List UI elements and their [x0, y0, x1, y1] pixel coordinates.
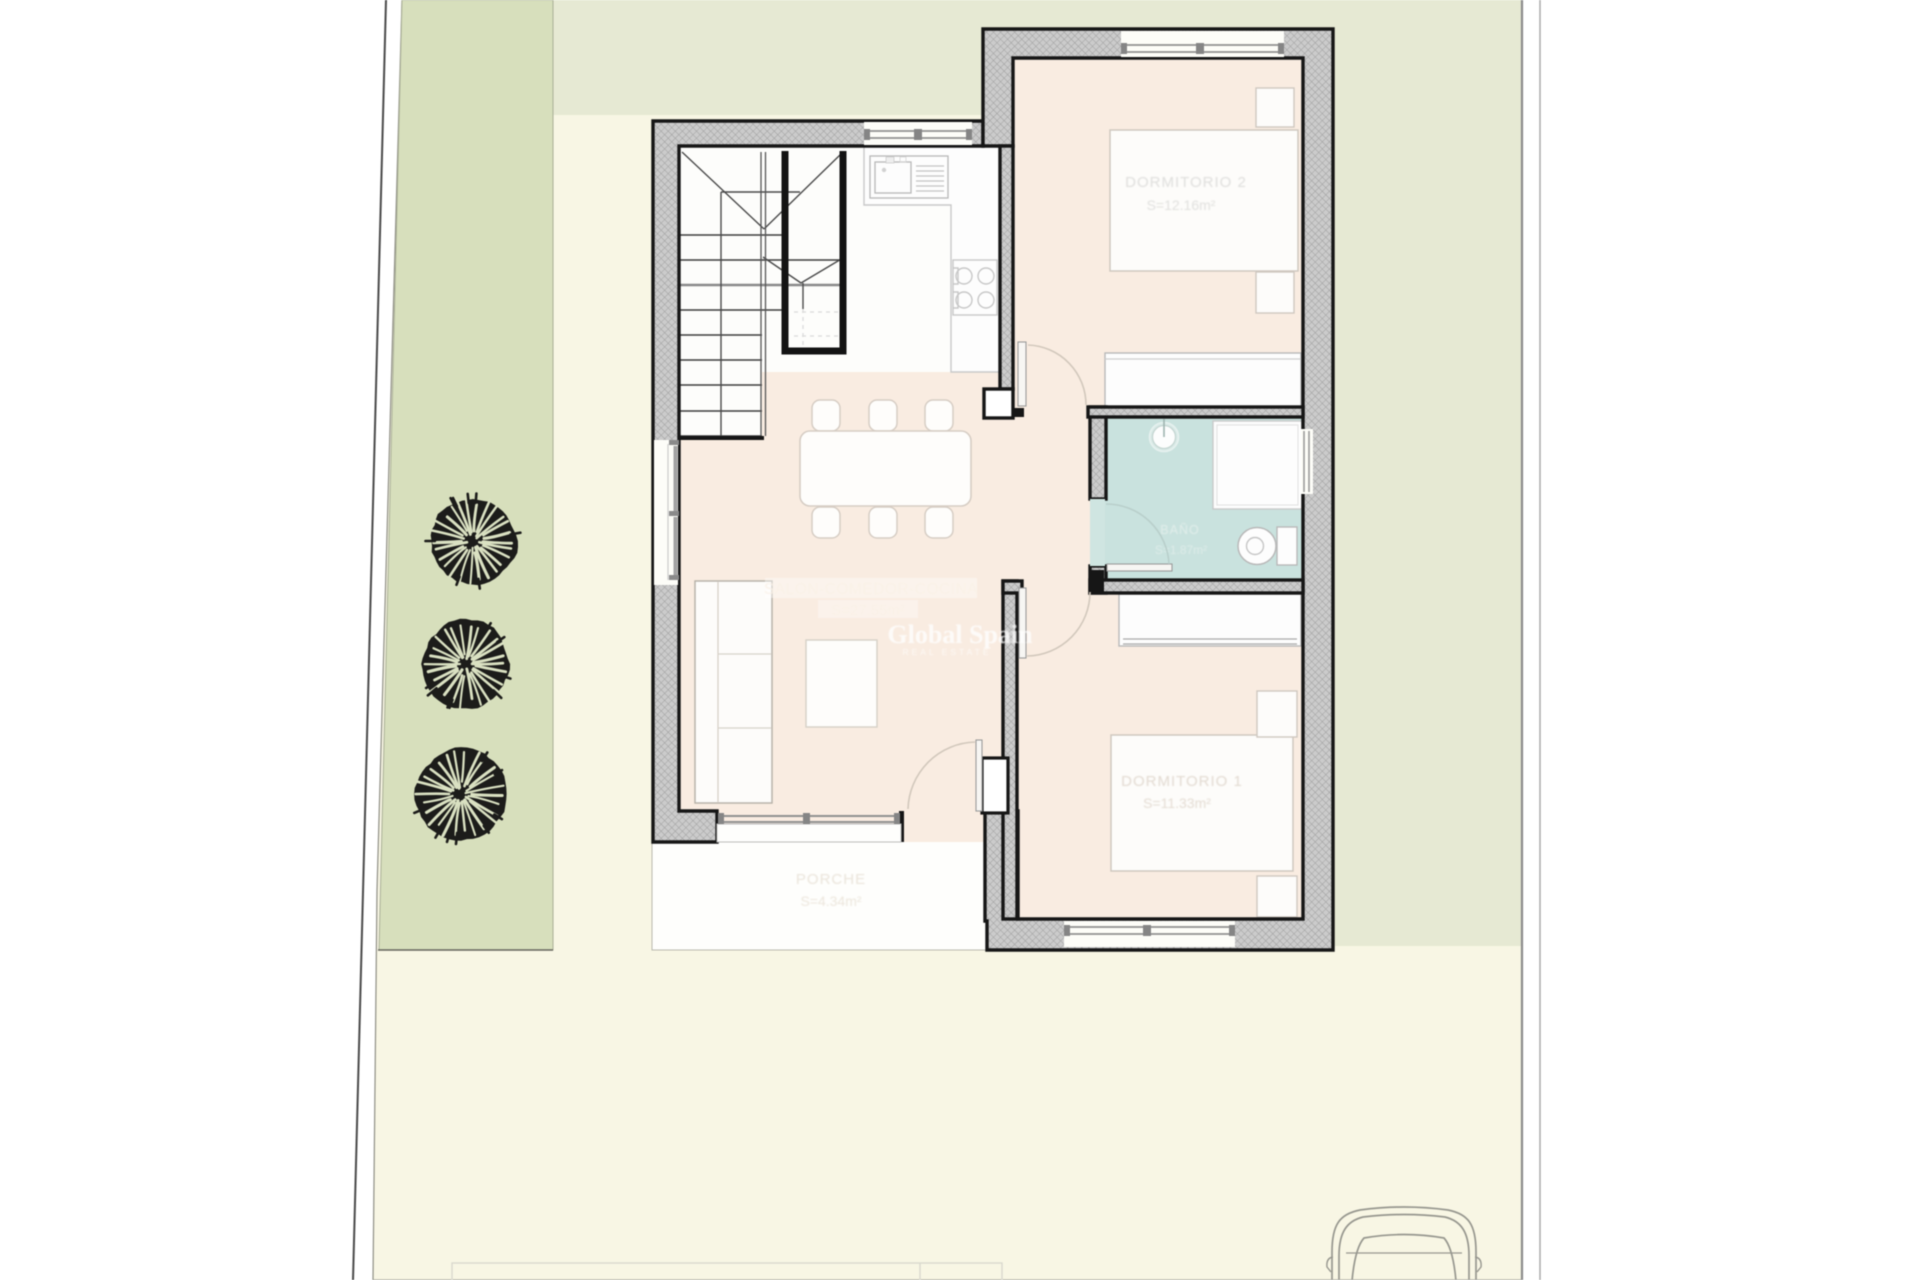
svg-text:DORMITORIO 1: DORMITORIO 1	[1121, 773, 1243, 790]
svg-text:S=1.87m²: S=1.87m²	[1155, 543, 1207, 557]
svg-text:DORMITORIO 2: DORMITORIO 2	[1125, 174, 1247, 191]
svg-text:S=11.33m²: S=11.33m²	[1143, 795, 1211, 811]
svg-text:S=4.34m²: S=4.34m²	[800, 893, 861, 909]
svg-text:SALON-COMEDOR-COCINA: SALON-COMEDOR-COCINA	[764, 581, 978, 598]
svg-text:BAÑO: BAÑO	[1160, 523, 1199, 537]
svg-text:Global Spain: Global Spain	[887, 620, 1033, 649]
svg-text:REAL ESTATE: REAL ESTATE	[902, 647, 991, 657]
svg-text:S=27.55m²: S=27.55m²	[831, 602, 905, 619]
svg-text:PORCHE: PORCHE	[796, 871, 866, 888]
svg-text:S=12.16m²: S=12.16m²	[1147, 197, 1216, 213]
